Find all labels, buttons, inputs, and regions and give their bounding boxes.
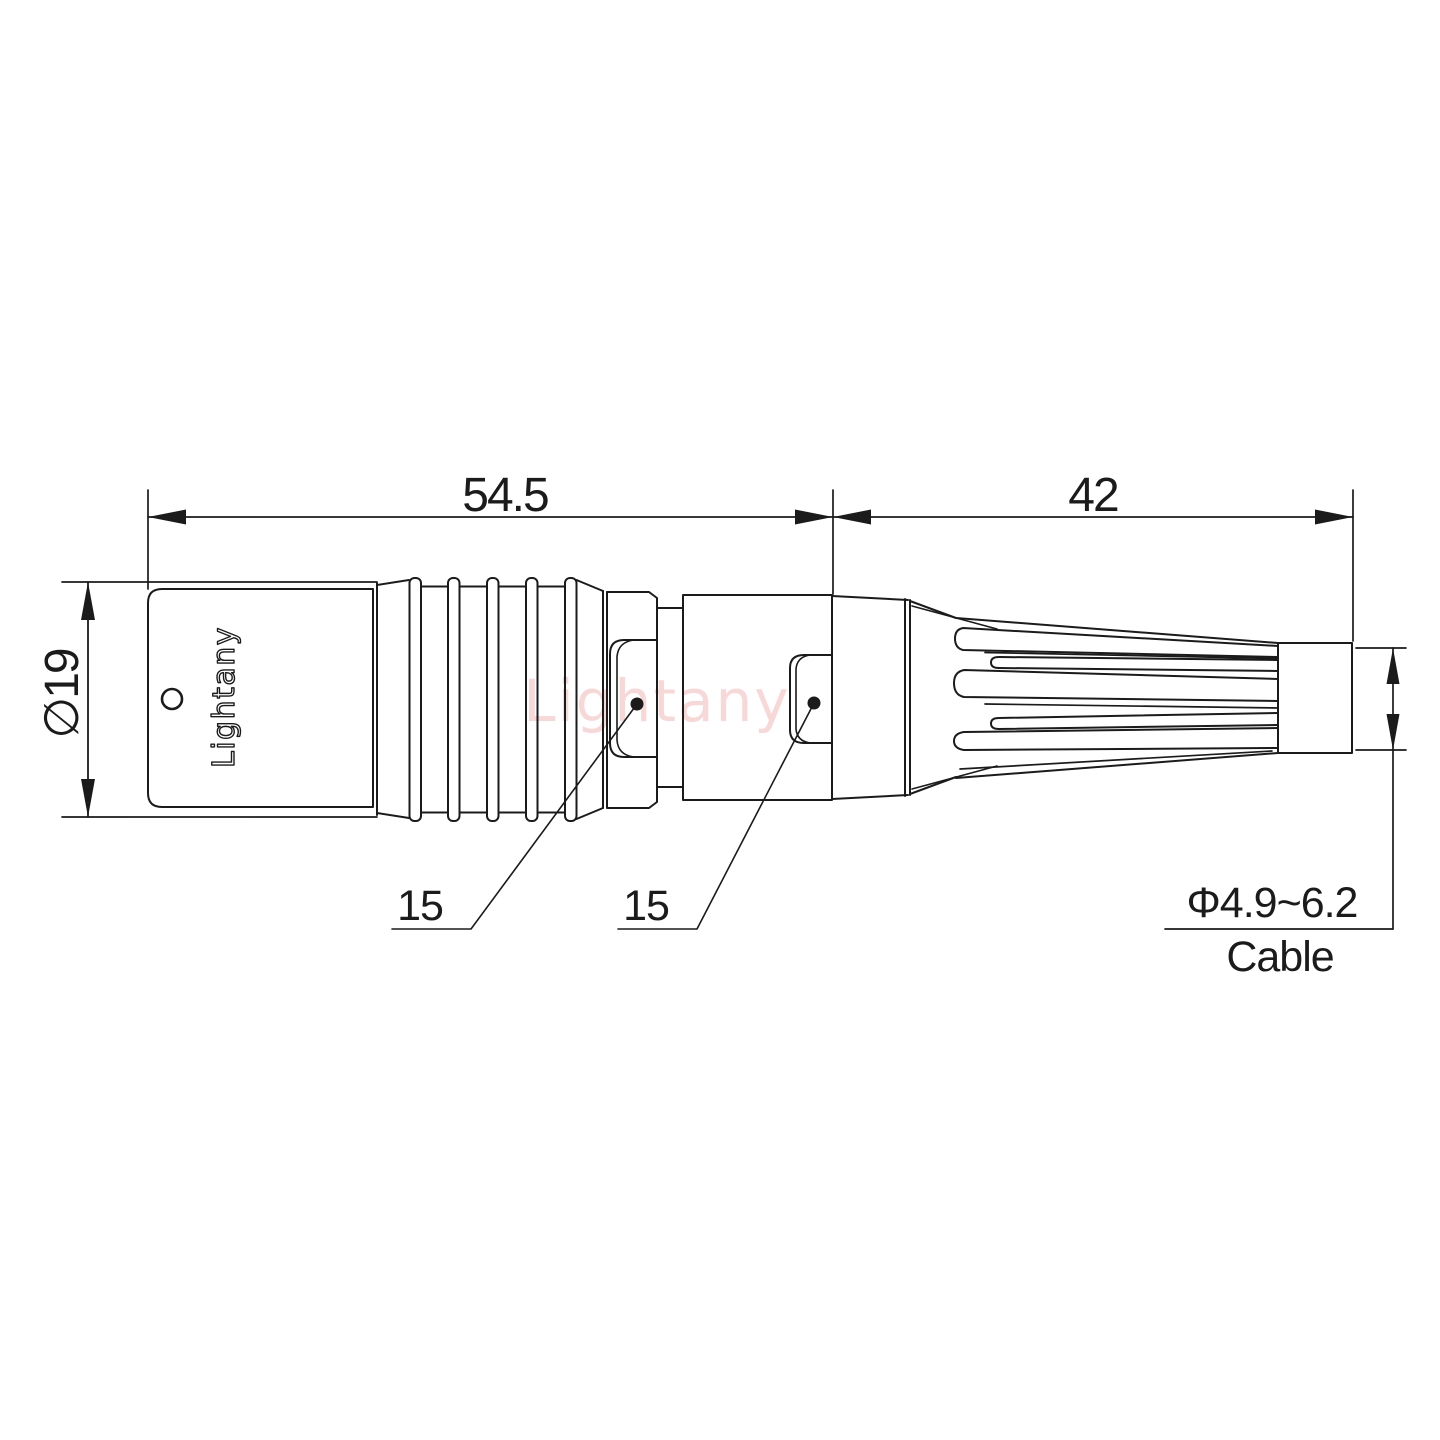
cable-diameter-range: Φ4.9~6.2 [1187,879,1358,927]
cable-end-sleeve [1278,643,1352,753]
callout-front-label: 15 [397,882,443,930]
strain-relief-cone [954,618,1278,778]
cable-label: Cable [1226,933,1333,981]
body-brand-engraving: Lightany [207,626,242,768]
body-hole [162,689,182,709]
callout-front-latch: 15 [392,704,637,930]
dim-rear-length: 42 [1068,469,1118,522]
technical-drawing: Lightany Lightany [0,0,1440,1440]
callout-rear-label: 15 [623,882,669,930]
dimension-cable: Φ4.9~6.2 Cable [1165,648,1406,981]
drawing-canvas: Lightany Lightany [0,0,1440,1440]
dim-front-length: 54.5 [462,469,548,522]
dim-body-diameter: ∅19 [36,649,89,739]
callout-rear-latch: 15 [618,703,814,930]
dimension-lengths: 54.5 42 [148,469,1353,641]
